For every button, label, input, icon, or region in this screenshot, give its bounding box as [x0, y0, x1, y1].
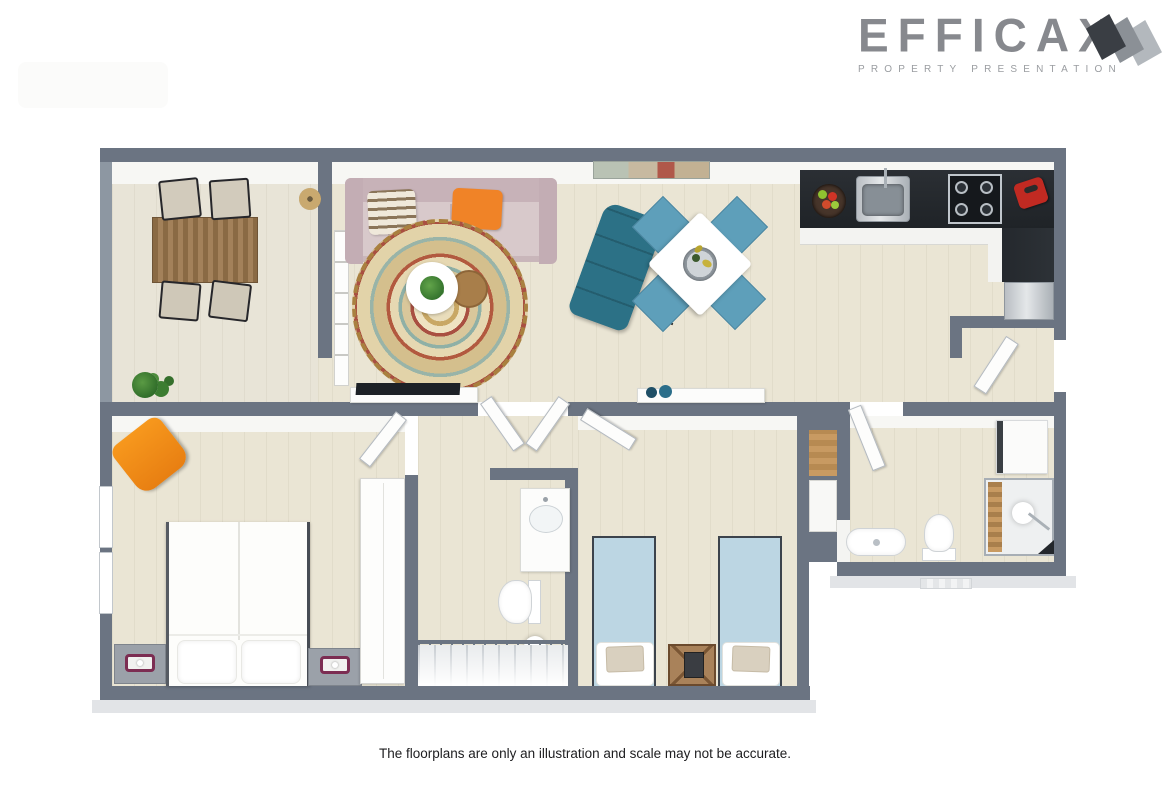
- wall-top: [100, 148, 1066, 162]
- twin-nightstand: [668, 644, 716, 686]
- cooktop: [948, 174, 1002, 224]
- single-bed: [718, 536, 782, 686]
- logo-mark-icon: [1086, 14, 1162, 70]
- potted-plant: [132, 372, 158, 398]
- vanity-sink: [520, 488, 570, 572]
- wall-bath-right: [1054, 416, 1066, 576]
- shower-arm: [1028, 512, 1050, 530]
- wall-mid-left: [100, 402, 478, 416]
- disclaimer-caption: The floorplans are only an illustration …: [0, 746, 1170, 761]
- fruit: [822, 200, 831, 209]
- kitchen-counter-right: [1002, 228, 1054, 282]
- balcony-chair: [209, 178, 252, 221]
- shower-wood-slats: [988, 482, 1002, 552]
- shower-glass-corner: [1038, 540, 1054, 554]
- tv: [356, 383, 461, 395]
- wall-mid-center: [568, 402, 850, 416]
- wall-bottom-main: [100, 686, 810, 700]
- table-lamp: [125, 654, 155, 672]
- wall-twin-right: [797, 416, 809, 700]
- bed-pillow: [241, 640, 301, 684]
- logo-subtitle: PROPERTY PRESENTATION: [858, 64, 1122, 75]
- sideboard-decor: [646, 387, 657, 398]
- table-plant: [420, 276, 444, 300]
- staircase: [418, 640, 568, 686]
- window: [99, 486, 113, 548]
- bath-mat-step: [920, 578, 972, 589]
- faint-watermark: [18, 62, 168, 108]
- balcony-chair: [158, 280, 201, 321]
- bed-pillow: [177, 640, 237, 684]
- window: [99, 552, 113, 614]
- fruit: [818, 190, 827, 199]
- logo: EFFICAX PROPERTY PRESENTATION: [858, 8, 1158, 78]
- balcony-table: [152, 217, 258, 283]
- wall-right-kitchen: [1054, 162, 1066, 340]
- wicker-wall-decor: [299, 188, 321, 210]
- wall-entry-inner: [950, 328, 962, 358]
- bathroom-sink: [846, 528, 906, 556]
- closet-wardrobe: [809, 480, 837, 532]
- bed-cushion: [732, 645, 771, 672]
- wall-divider-balcony: [318, 162, 332, 358]
- sideboard-decor: [659, 385, 672, 398]
- nightstand-books: [684, 652, 704, 678]
- balcony-chair: [158, 177, 202, 221]
- fruit: [828, 192, 837, 201]
- bed-cushion: [606, 645, 645, 672]
- wall-master-right: [405, 475, 418, 700]
- single-bed: [592, 536, 656, 686]
- closet-niche-wood-floor: [809, 430, 837, 476]
- bathroom-toilet: [920, 514, 958, 564]
- toilet: [498, 576, 544, 628]
- wall-bath-left: [837, 416, 850, 520]
- washing-machine: [996, 420, 1048, 474]
- kitchen-sink-basin: [862, 184, 904, 216]
- kitchen-faucet: [884, 168, 887, 188]
- double-bed: [166, 522, 310, 686]
- wall-bath-bottom: [837, 562, 1066, 576]
- table-lamp: [320, 656, 350, 674]
- wardrobe: [360, 478, 405, 684]
- floorplan-screenshot: EFFICAX PROPERTY PRESENTATION: [0, 0, 1170, 785]
- stainless-appliance: [1004, 282, 1054, 320]
- shower: [984, 478, 1054, 556]
- wall-mid-right: [903, 402, 1066, 416]
- kitchen-cabinet-front: [988, 228, 1002, 282]
- balcony-chair: [208, 280, 252, 323]
- wall-art: [593, 161, 710, 179]
- wine-bottle: [692, 254, 700, 262]
- wall-balcony-left: [100, 162, 112, 402]
- wall-entry-corner: [1054, 392, 1066, 402]
- divider-opening-floor: [318, 358, 332, 402]
- plan-base-shadow: [92, 700, 816, 713]
- logo-title: EFFICAX: [858, 7, 1122, 62]
- fruit: [831, 201, 839, 209]
